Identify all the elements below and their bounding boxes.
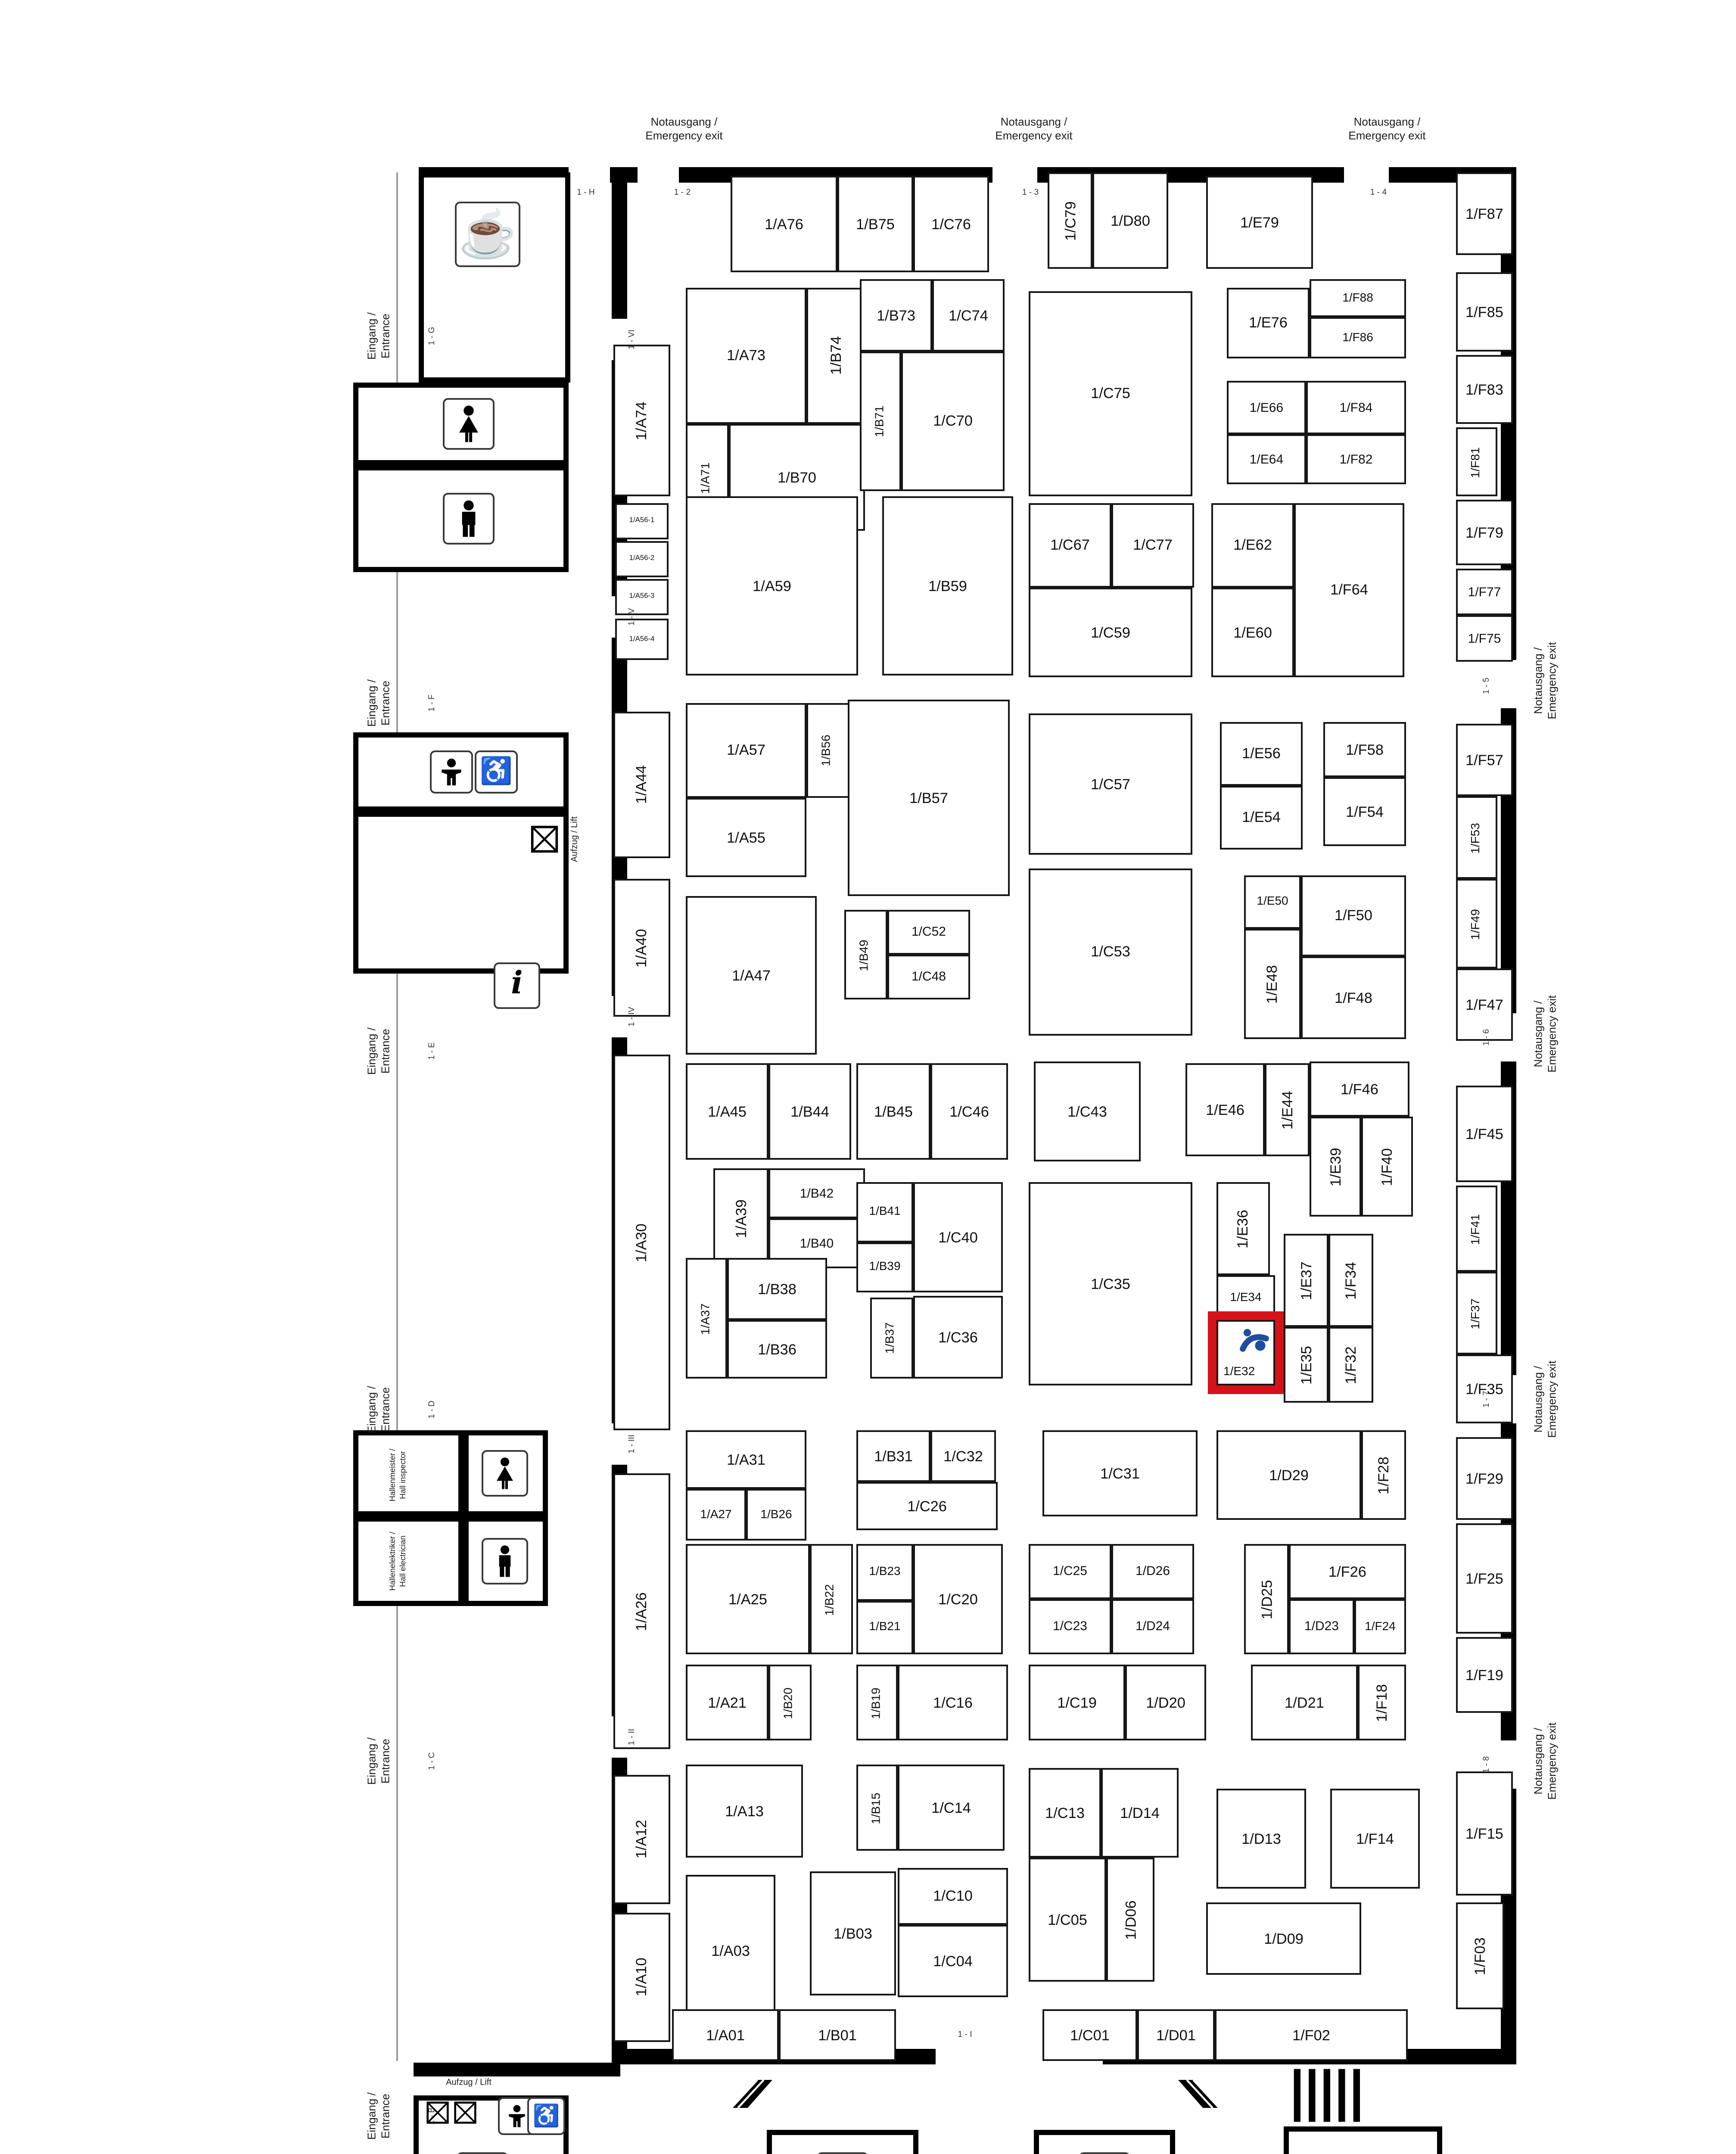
booth-1-D23[interactable]: 1/D23: [1289, 1599, 1354, 1654]
entrance-label-text: Entrance: [381, 681, 393, 725]
booth-1-C57[interactable]: 1/C57: [1029, 713, 1192, 855]
booth-1-E37[interactable]: 1/E37: [1284, 1234, 1328, 1327]
booth-1-F87[interactable]: 1/F87: [1456, 172, 1513, 255]
booth-1-B45[interactable]: 1/B45: [856, 1063, 930, 1160]
emergency-exit-label: Notausgang /Emergency exit: [1534, 1722, 1562, 1799]
entrance-label: Eingang /Entrance: [367, 312, 395, 360]
booth-label: 1/E36: [1236, 1209, 1251, 1248]
booth-1-F29[interactable]: 1/F29: [1456, 1437, 1513, 1520]
info-icon: i: [494, 962, 540, 1009]
lift-label-text: Aufzug / Lift: [446, 2078, 492, 2089]
entrance-label: Eingang /Entrance: [367, 679, 395, 727]
entrance-label-text: Entrance: [381, 314, 393, 358]
booth-1-F19[interactable]: 1/F19: [1456, 1637, 1513, 1713]
booth-label: 1/E56: [1242, 747, 1281, 761]
emergency-exit-label-text: Emergency exit: [1547, 1722, 1559, 1799]
booth-1-E66[interactable]: 1/E66: [1227, 381, 1306, 434]
booth-1-C43[interactable]: 1/C43: [1034, 1061, 1141, 1161]
booth-1-E32[interactable]: 1/E32: [1216, 1320, 1275, 1385]
booth-1-A12[interactable]: 1/A12: [613, 1775, 670, 1904]
booth-1-F64[interactable]: 1/F64: [1294, 503, 1404, 677]
booth-label: 1/D06: [1123, 1900, 1138, 1939]
booth-1-D20[interactable]: 1/D20: [1125, 1665, 1206, 1740]
booth-1-E62[interactable]: 1/E62: [1211, 503, 1294, 588]
booth-1-C13[interactable]: 1/C13: [1029, 1768, 1101, 1858]
door-code-text: 1 - 6: [1484, 1029, 1492, 1046]
booth-1-A76[interactable]: 1/A76: [731, 176, 837, 272]
booth-1-F45[interactable]: 1/F45: [1456, 1086, 1513, 1182]
booth-1-E39[interactable]: 1/E39: [1310, 1117, 1361, 1217]
booth-1-B19[interactable]: 1/B19: [856, 1665, 898, 1740]
booth-label: 1/E32: [1223, 1366, 1255, 1379]
booth-1-F25[interactable]: 1/F25: [1456, 1523, 1513, 1634]
booth-1-D21[interactable]: 1/D21: [1251, 1665, 1358, 1740]
booth-1-B41[interactable]: 1/B41: [856, 1182, 913, 1242]
booth-label: 1/B31: [874, 1449, 913, 1463]
emergency-exit-label-text: Emergency exit: [1547, 995, 1559, 1072]
door-code: 1 - 8: [1484, 1756, 1494, 1773]
booth-1-C23[interactable]: 1/C23: [1029, 1599, 1111, 1654]
booth-1-B37[interactable]: 1/B37: [870, 1298, 913, 1379]
emergency-exit-label: Notausgang /Emergency exit: [1534, 995, 1562, 1072]
booth-1-E79[interactable]: 1/E79: [1206, 176, 1313, 269]
booth-1-D26[interactable]: 1/D26: [1111, 1544, 1194, 1599]
booth-label: 1/B37: [886, 1322, 898, 1354]
man-icon: [1079, 2152, 1130, 2154]
booth-1-C10[interactable]: 1/C10: [898, 1868, 1008, 1925]
booth-1-F24[interactable]: 1/F24: [1354, 1599, 1406, 1654]
booth-1-F79[interactable]: 1/F79: [1456, 500, 1513, 565]
booth-label: 1/B03: [834, 1926, 872, 1941]
booth-1-F82[interactable]: 1/F82: [1306, 434, 1406, 484]
emergency-exit-label-text: Notausgang /: [1534, 1728, 1546, 1795]
booth-1-B73[interactable]: 1/B73: [860, 279, 932, 352]
booth-label: 1/C43: [1067, 1104, 1107, 1119]
lift-icon-shape: [453, 2101, 477, 2125]
door-code-text: 1 - 5: [1484, 678, 1492, 694]
booth-label: 1/D01: [1156, 2028, 1196, 2042]
man-icon-shape: [488, 1545, 521, 1578]
booth-1-A10[interactable]: 1/A10: [613, 1913, 670, 2042]
booth-1-F54[interactable]: 1/F54: [1323, 777, 1406, 846]
booth-label: 1/A56-1: [629, 518, 655, 525]
emergency-exit-label-text: Notausgang /: [1534, 647, 1546, 714]
booth-label: 1/B23: [869, 1566, 900, 1578]
booth-label: 1/B59: [928, 579, 967, 593]
booth-1-E44[interactable]: 1/E44: [1265, 1063, 1310, 1156]
booth-label: 1/F26: [1328, 1564, 1366, 1579]
door-code-text: 1 - 2: [674, 190, 691, 198]
booth-label: 1/A03: [711, 1943, 750, 1958]
booth-1-F58[interactable]: 1/F58: [1323, 722, 1406, 777]
booth-label: 1/B74: [828, 336, 843, 375]
lift-icon: [426, 2101, 450, 2125]
door-code-text: 1 - III: [629, 1435, 638, 1454]
booth-label: 1/C77: [1133, 538, 1173, 553]
booth-1-B44[interactable]: 1/B44: [768, 1063, 851, 1160]
booth-1-A25[interactable]: 1/A25: [686, 1544, 810, 1654]
entrance-label-text: Eingang /: [367, 679, 379, 727]
booth-1-B42[interactable]: 1/B42: [768, 1168, 865, 1218]
booth-1-B75[interactable]: 1/B75: [837, 176, 913, 272]
booth-1-D14[interactable]: 1/D14: [1101, 1768, 1179, 1858]
booth-1-F46[interactable]: 1/F46: [1310, 1061, 1409, 1117]
booth-1-F18[interactable]: 1/F18: [1358, 1665, 1406, 1740]
booth-1-E64[interactable]: 1/E64: [1227, 434, 1306, 484]
booth-label: 1/C14: [931, 1800, 971, 1815]
booth-1-F37[interactable]: 1/F37: [1456, 1272, 1497, 1354]
booth-1-A26[interactable]: 1/A26: [613, 1473, 670, 1749]
booth-1-E76[interactable]: 1/E76: [1227, 288, 1310, 358]
booth-1-E34[interactable]: 1/E34: [1216, 1275, 1275, 1320]
booth-label: 1/F25: [1465, 1571, 1503, 1586]
hall-inspector-label-text: Hall inspector: [398, 1451, 407, 1499]
booth-1-F49[interactable]: 1/F49: [1456, 879, 1497, 968]
booth-1-A37[interactable]: 1/A37: [686, 1258, 727, 1379]
booth-label: 1/E60: [1233, 625, 1272, 640]
booth-label: 1/C35: [1091, 1276, 1130, 1291]
booth-1-A44[interactable]: 1/A44: [613, 712, 670, 858]
booth-label: 1/F54: [1346, 804, 1384, 819]
booth-1-C05[interactable]: 1/C05: [1029, 1858, 1106, 1982]
booth-1-E46[interactable]: 1/E46: [1185, 1063, 1265, 1156]
hall-electrician-label-text: Hall electrician: [398, 1535, 407, 1587]
booth-1-F14[interactable]: 1/F14: [1330, 1789, 1420, 1889]
booth-label: 1/A10: [635, 1958, 649, 1997]
booth-label: 1/F14: [1356, 1831, 1394, 1846]
booth-1-F32[interactable]: 1/F32: [1328, 1327, 1373, 1403]
booth-1-A55[interactable]: 1/A55: [686, 798, 806, 877]
entrance-label-text: Entrance: [381, 1387, 393, 1432]
booth-1-B71[interactable]: 1/B71: [860, 352, 901, 491]
lift-icon-shape: [530, 825, 559, 854]
booth-1-F35[interactable]: 1/F35: [1456, 1354, 1513, 1423]
booth-label: 1/A31: [727, 1452, 765, 1467]
booth-label: 1/F53: [1471, 822, 1483, 853]
booth-label: 1/F40: [1380, 1148, 1394, 1186]
booth-1-F53[interactable]: 1/F53: [1456, 796, 1497, 879]
emergency-exit-label: Notausgang /Emergency exit: [995, 117, 1072, 145]
booth-1-E36[interactable]: 1/E36: [1216, 1182, 1270, 1275]
entrance-label-text: Eingang /: [367, 312, 379, 360]
booth-1-F02[interactable]: 1/F02: [1215, 2009, 1408, 2061]
cash-boxes-left-room: [767, 2130, 918, 2154]
booth-1-D29[interactable]: 1/D29: [1216, 1430, 1361, 1520]
booth-1-B36[interactable]: 1/B36: [727, 1320, 827, 1379]
lift-label: Aufzug / Lift: [446, 2078, 492, 2089]
hall-inspector-label: Hallenmeister /Hall inspector: [388, 1449, 408, 1502]
booth-1-F34[interactable]: 1/F34: [1328, 1234, 1373, 1327]
booth-1-F84[interactable]: 1/F84: [1306, 381, 1406, 434]
booth-1-A56-2[interactable]: 1/A56-2: [615, 541, 669, 577]
child-icon-shape: [505, 2104, 529, 2128]
booth-label: 1/C05: [1048, 1912, 1087, 1927]
booth-1-C31[interactable]: 1/C31: [1042, 1430, 1198, 1516]
booth-1-C26[interactable]: 1/C26: [856, 1482, 998, 1530]
booth-1-F03[interactable]: 1/F03: [1456, 1902, 1504, 2009]
booth-1-F48[interactable]: 1/F48: [1301, 956, 1406, 1039]
booth-1-B26[interactable]: 1/B26: [746, 1489, 806, 1541]
booth-label: 1/F02: [1292, 2028, 1330, 2042]
hall-inspector-label-text: Hallenmeister /: [388, 1449, 397, 1502]
hall-electrician-room: [353, 1516, 464, 1606]
booth-1-E48[interactable]: 1/E48: [1244, 929, 1301, 1039]
hall-electrician-label: Hallenelektriker /Hall electrician: [388, 1532, 408, 1591]
booth-1-F57[interactable]: 1/F57: [1456, 724, 1513, 796]
booth-1-A57[interactable]: 1/A57: [686, 703, 806, 798]
booth-1-C75[interactable]: 1/C75: [1029, 291, 1192, 496]
booth-label: 1/F75: [1468, 632, 1501, 645]
woman-icon: [443, 398, 495, 450]
booth-1-B49[interactable]: 1/B49: [844, 910, 887, 999]
booth-label: 1/F29: [1465, 1471, 1503, 1486]
wall: [414, 2063, 620, 2076]
booth-1-C32[interactable]: 1/C32: [930, 1430, 996, 1482]
booth-label: 1/C23: [1053, 1620, 1087, 1633]
emergency-exit-label-text: Emergency exit: [1547, 1360, 1559, 1438]
booth-1-F81[interactable]: 1/F81: [1456, 427, 1497, 496]
booth-1-D25[interactable]: 1/D25: [1244, 1544, 1289, 1654]
entrance-label: Eingang /Entrance: [367, 1737, 395, 1785]
booth-label: 1/A56-3: [629, 594, 655, 601]
booth-1-A01[interactable]: 1/A01: [672, 2009, 779, 2061]
booth-1-C19[interactable]: 1/C19: [1029, 1665, 1125, 1740]
booth-1-C01[interactable]: 1/C01: [1042, 2009, 1137, 2061]
booth-1-C40[interactable]: 1/C40: [913, 1182, 1003, 1292]
lift-icon: [453, 2101, 477, 2125]
booth-label: 1/F64: [1330, 583, 1368, 598]
booth-1-E35[interactable]: 1/E35: [1284, 1327, 1328, 1403]
emergency-exit-label-text: Emergency exit: [1348, 131, 1425, 143]
booth-1-A13[interactable]: 1/A13: [686, 1765, 803, 1858]
booth-1-C25[interactable]: 1/C25: [1029, 1544, 1111, 1599]
lift-icon: [530, 825, 559, 854]
door-code: 1 - H: [577, 190, 595, 200]
booth-1-F88[interactable]: 1/F88: [1310, 279, 1406, 317]
booth-1-B31[interactable]: 1/B31: [856, 1430, 930, 1482]
booth-label: 1/B56: [822, 735, 834, 766]
booth-1-D06[interactable]: 1/D06: [1106, 1858, 1154, 1982]
booth-1-E60[interactable]: 1/E60: [1211, 588, 1294, 677]
booth-1-A31[interactable]: 1/A31: [686, 1430, 806, 1489]
booth-1-A45[interactable]: 1/A45: [686, 1063, 768, 1160]
entrance-label-text: Eingang /: [367, 2092, 379, 2140]
booth-1-C53[interactable]: 1/C53: [1029, 868, 1192, 1036]
booth-1-C79[interactable]: 1/C79: [1048, 172, 1092, 269]
woman-icon: [817, 2152, 868, 2154]
booth-label: 1/C52: [912, 926, 946, 939]
booth-1-B20[interactable]: 1/B20: [768, 1665, 812, 1740]
booth-1-F28[interactable]: 1/F28: [1361, 1430, 1406, 1520]
booth-label: 1/C36: [938, 1330, 978, 1345]
booth-1-B23[interactable]: 1/B23: [856, 1544, 913, 1601]
booth-1-C14[interactable]: 1/C14: [898, 1765, 1005, 1851]
door-code: 1 - III: [629, 1435, 639, 1454]
hall-inspector-room: [353, 1430, 464, 1516]
booth-label: 1/F81: [1471, 446, 1483, 477]
booth-1-B39[interactable]: 1/B39: [856, 1242, 913, 1292]
booth-1-A30[interactable]: 1/A30: [613, 1055, 670, 1430]
booth-1-A47[interactable]: 1/A47: [686, 896, 817, 1055]
booth-1-C16[interactable]: 1/C16: [898, 1665, 1008, 1740]
booth-1-F26[interactable]: 1/F26: [1289, 1544, 1406, 1599]
booth-label: 1/C19: [1057, 1695, 1097, 1710]
booth-1-A21[interactable]: 1/A21: [686, 1665, 768, 1740]
booth-1-A39[interactable]: 1/A39: [713, 1168, 768, 1268]
booth-label: 1/C31: [1100, 1466, 1140, 1481]
booth-1-B59[interactable]: 1/B59: [882, 496, 1013, 675]
booth-1-B22[interactable]: 1/B22: [810, 1544, 853, 1654]
booth-1-F75[interactable]: 1/F75: [1456, 615, 1513, 662]
door-code-text: 1 - IV: [629, 1007, 638, 1027]
booth-1-F85[interactable]: 1/F85: [1456, 272, 1513, 352]
booth-label: 1/C20: [938, 1592, 978, 1606]
woman-icon: [482, 1450, 528, 1497]
door-code-text: 1 - H: [577, 190, 595, 198]
door-code-text: 1 - VI: [629, 330, 638, 349]
booth-1-D01[interactable]: 1/D01: [1137, 2009, 1215, 2061]
booth-label: 1/F19: [1465, 1668, 1503, 1682]
woman-icon-shape: [450, 405, 488, 443]
booth-label: 1/F86: [1342, 332, 1373, 344]
booth-label: 1/F47: [1465, 997, 1503, 1012]
booth-1-E56[interactable]: 1/E56: [1220, 722, 1303, 786]
booth-1-D09[interactable]: 1/D09: [1206, 1902, 1361, 1975]
entrance-label-text: Eingang /: [367, 1737, 379, 1785]
booth-1-D24[interactable]: 1/D24: [1111, 1599, 1194, 1654]
booth-1-A59[interactable]: 1/A59: [686, 496, 858, 675]
booth-1-B15[interactable]: 1/B15: [856, 1765, 898, 1851]
booth-1-C04[interactable]: 1/C04: [898, 1925, 1008, 1997]
booth-label: 1/C75: [1091, 386, 1130, 401]
stairs-icon: [1291, 2056, 1370, 2135]
emergency-exit-label: Notausgang /Emergency exit: [1534, 1360, 1562, 1438]
booth-1-C67[interactable]: 1/C67: [1029, 503, 1111, 588]
booth-1-D13[interactable]: 1/D13: [1216, 1789, 1306, 1889]
booth-1-A03[interactable]: 1/A03: [686, 1875, 775, 2026]
booth-label: 1/C59: [1091, 625, 1130, 640]
booth-1-F15[interactable]: 1/F15: [1456, 1771, 1513, 1896]
booth-label: 1/D80: [1111, 213, 1150, 228]
booth-1-C70[interactable]: 1/C70: [901, 352, 1005, 491]
door-code: 1 - 7: [1484, 1391, 1494, 1407]
door-code: 1 - I: [958, 2032, 972, 2042]
door-code: 1 - II: [629, 1729, 639, 1745]
cloakroom-icon: [457, 2152, 508, 2154]
booth-1-C77[interactable]: 1/C77: [1111, 503, 1194, 588]
booth-1-C35[interactable]: 1/C35: [1029, 1182, 1192, 1385]
door-code: 1 - 5: [1484, 678, 1494, 694]
booth-1-B03[interactable]: 1/B03: [810, 1871, 896, 1995]
booth-label: 1/C67: [1050, 538, 1090, 553]
entrance-label-text: Entrance: [381, 2094, 393, 2138]
booth-1-F77[interactable]: 1/F77: [1456, 569, 1513, 615]
booth-1-B57[interactable]: 1/B57: [848, 700, 1010, 896]
wheelchair-icon: ♿: [527, 2097, 565, 2135]
booth-1-F86[interactable]: 1/F86: [1310, 317, 1406, 358]
booth-1-F83[interactable]: 1/F83: [1456, 355, 1513, 424]
booth-1-A73[interactable]: 1/A73: [686, 288, 806, 424]
booth-label: 1/A71: [701, 461, 713, 493]
man-icon: [482, 1538, 528, 1584]
booth-1-E54[interactable]: 1/E54: [1220, 786, 1303, 850]
door-code-text: 1 - 7: [1484, 1391, 1492, 1407]
booth-1-A74[interactable]: 1/A74: [613, 345, 670, 496]
booth-1-C20[interactable]: 1/C20: [913, 1544, 1003, 1654]
booth-label: 1/C16: [933, 1695, 973, 1710]
booth-1-B21[interactable]: 1/B21: [856, 1601, 913, 1654]
booth-1-A40[interactable]: 1/A40: [613, 879, 670, 1017]
booth-label: 1/C32: [943, 1449, 983, 1463]
booth-label: 1/B15: [871, 1792, 883, 1823]
booth-label: 1/F49: [1471, 908, 1483, 939]
booth-1-B74[interactable]: 1/B74: [806, 288, 865, 424]
booth-1-F41[interactable]: 1/F41: [1456, 1186, 1497, 1272]
booth-label: 1/D13: [1241, 1831, 1281, 1846]
booth-1-A56-1[interactable]: 1/A56-1: [615, 503, 669, 539]
door-code: 1 - 3: [1022, 190, 1039, 200]
coffee-glyph: ☕: [459, 211, 517, 258]
booth-label: 1/C10: [933, 1889, 973, 1904]
booth-label: 1/B19: [871, 1687, 883, 1718]
booth-label: 1/B22: [825, 1583, 837, 1615]
door-gap: [1497, 660, 1520, 708]
booth-1-A56-4[interactable]: 1/A56-4: [615, 619, 669, 660]
emergency-exit-label-text: Emergency exit: [995, 131, 1072, 143]
booth-1-F50[interactable]: 1/F50: [1301, 875, 1406, 956]
booth-1-F40[interactable]: 1/F40: [1361, 1117, 1413, 1217]
booth-label: 1/D29: [1269, 1468, 1309, 1482]
booth-label: 1/C48: [912, 971, 946, 984]
booth-label: 1/B36: [758, 1342, 796, 1357]
booth-1-C76[interactable]: 1/C76: [913, 176, 989, 272]
escalator-icon: [1172, 2063, 1223, 2114]
booth-1-C52[interactable]: 1/C52: [887, 910, 970, 955]
booth-1-C59[interactable]: 1/C59: [1029, 588, 1192, 677]
booth-1-D80[interactable]: 1/D80: [1092, 172, 1168, 269]
booth-label: 1/B75: [856, 217, 895, 231]
booth-1-A27[interactable]: 1/A27: [686, 1489, 746, 1541]
door-code-text: 1 - II: [629, 1729, 638, 1745]
booth-label: 1/E76: [1249, 316, 1288, 330]
booth-label: 1/A01: [706, 2028, 745, 2042]
booth-label: 1/D14: [1120, 1805, 1160, 1820]
entrance-label-text: Eingang /: [367, 1027, 379, 1075]
booth-label: 1/B57: [909, 791, 948, 805]
booth-label: 1/A55: [727, 830, 765, 845]
booth-label: 1/A56-2: [629, 556, 655, 563]
booth-1-C48[interactable]: 1/C48: [887, 955, 970, 999]
booth-label: 1/C76: [931, 217, 971, 231]
booth-label: 1/A40: [635, 928, 649, 967]
booth-1-C36[interactable]: 1/C36: [913, 1296, 1003, 1379]
booth-1-B01[interactable]: 1/B01: [779, 2009, 896, 2061]
booth-label: 1/C79: [1063, 201, 1077, 240]
booth-1-B38[interactable]: 1/B38: [727, 1258, 827, 1320]
booth-1-E50[interactable]: 1/E50: [1244, 875, 1301, 929]
stairs-icon-shape: [1291, 2056, 1370, 2135]
booth-1-C74[interactable]: 1/C74: [932, 279, 1005, 352]
booth-1-A56-3[interactable]: 1/A56-3: [615, 579, 669, 615]
hall-electrician-label-text: Hallenelektriker /: [388, 1532, 397, 1591]
booth-1-C46[interactable]: 1/C46: [930, 1063, 1008, 1160]
booth-label: 1/F83: [1465, 382, 1503, 397]
booth-1-B56[interactable]: 1/B56: [806, 703, 849, 798]
booth-label: 1/E54: [1242, 810, 1281, 825]
door-code-text: 1 - 4: [1370, 190, 1387, 198]
booth-label: 1/A57: [727, 743, 765, 758]
booth-label: 1/E79: [1240, 215, 1279, 230]
